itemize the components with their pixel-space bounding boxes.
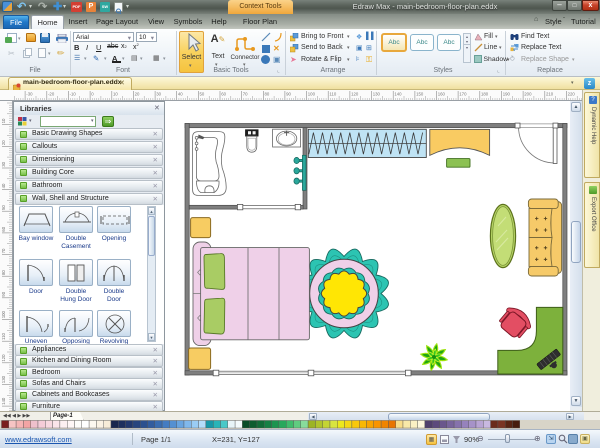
svg-text:140: 140 bbox=[1, 397, 6, 405]
svg-text:150: 150 bbox=[416, 92, 424, 97]
svg-text:90: 90 bbox=[1, 291, 6, 296]
svg-text:50: 50 bbox=[1, 205, 6, 210]
svg-text:180: 180 bbox=[481, 92, 489, 97]
svg-text:130: 130 bbox=[373, 92, 381, 97]
svg-text:20: 20 bbox=[1, 140, 6, 145]
svg-text:190: 190 bbox=[503, 92, 511, 97]
svg-text:220: 220 bbox=[568, 92, 576, 97]
svg-text:20: 20 bbox=[135, 92, 140, 97]
svg-text:80: 80 bbox=[1, 270, 6, 275]
svg-text:100: 100 bbox=[308, 92, 316, 97]
svg-text:140: 140 bbox=[394, 92, 402, 97]
svg-text:10: 10 bbox=[113, 92, 118, 97]
svg-text:30: 30 bbox=[1, 161, 6, 166]
svg-text:200: 200 bbox=[524, 92, 532, 97]
svg-text:-20: -20 bbox=[48, 92, 55, 97]
svg-text:70: 70 bbox=[1, 248, 6, 253]
svg-text:110: 110 bbox=[329, 92, 336, 97]
svg-text:40: 40 bbox=[1, 183, 6, 188]
svg-text:60: 60 bbox=[221, 92, 226, 97]
svg-text:160: 160 bbox=[438, 92, 446, 97]
svg-text:70: 70 bbox=[243, 92, 248, 97]
svg-text:30: 30 bbox=[156, 92, 161, 97]
svg-text:210: 210 bbox=[546, 92, 554, 97]
svg-text:90: 90 bbox=[286, 92, 291, 97]
svg-text:170: 170 bbox=[459, 92, 467, 97]
svg-text:10: 10 bbox=[1, 118, 6, 123]
svg-text:50: 50 bbox=[200, 92, 205, 97]
svg-text:100: 100 bbox=[1, 311, 6, 319]
svg-text:130: 130 bbox=[1, 375, 6, 383]
svg-text:120: 120 bbox=[351, 92, 359, 97]
svg-text:-30: -30 bbox=[26, 92, 33, 97]
svg-text:0: 0 bbox=[91, 92, 94, 97]
svg-text:80: 80 bbox=[265, 92, 270, 97]
svg-text:-10: -10 bbox=[70, 92, 77, 97]
svg-text:110: 110 bbox=[1, 333, 6, 340]
svg-text:40: 40 bbox=[178, 92, 183, 97]
svg-text:120: 120 bbox=[1, 354, 6, 362]
svg-text:60: 60 bbox=[1, 226, 6, 231]
